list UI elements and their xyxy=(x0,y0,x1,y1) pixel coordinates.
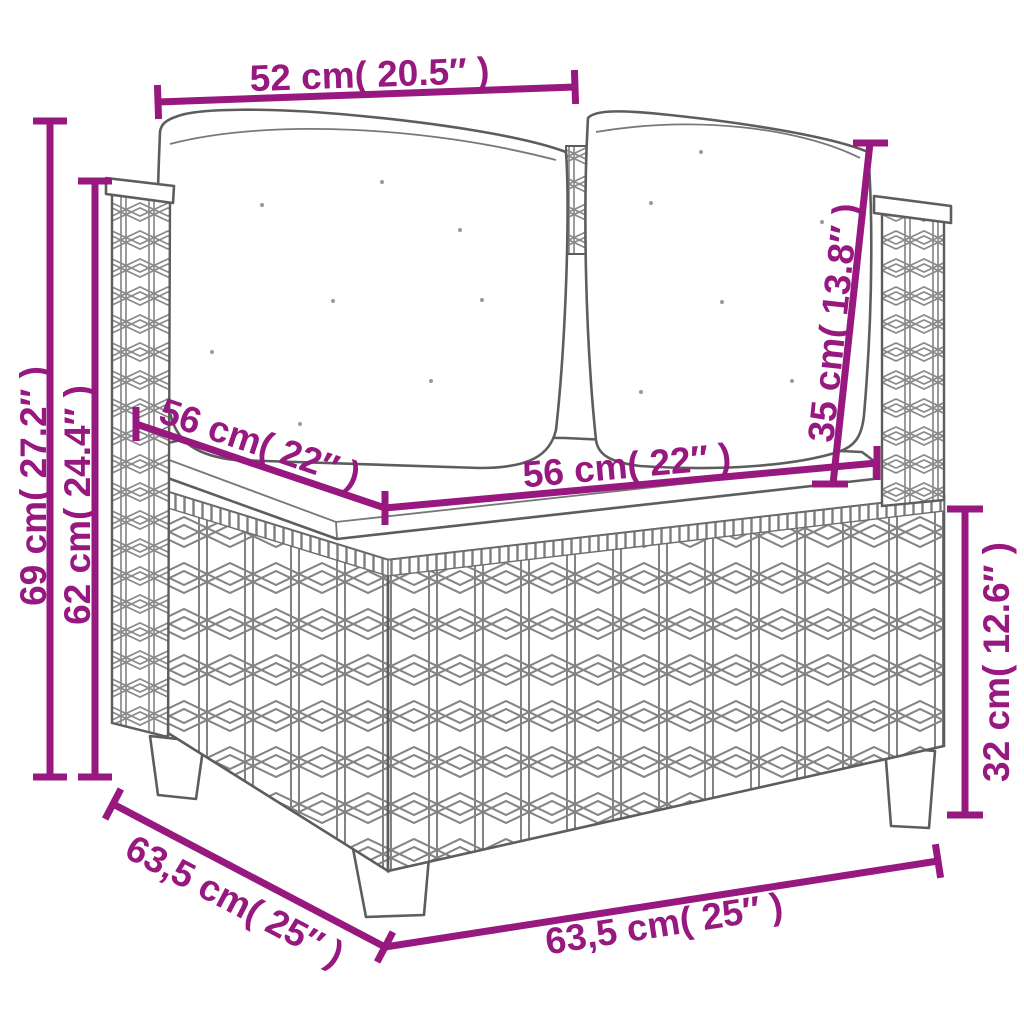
dim-label-base-height: 32 cm( 12.6″ ) xyxy=(976,542,1017,782)
leg-right xyxy=(885,747,935,828)
seat-cushion-corner-edge xyxy=(336,522,337,538)
dim-label-top-width: 52 cm( 20.5″ ) xyxy=(249,50,490,99)
armrest-left xyxy=(106,178,174,737)
dim-label-base-width: 63,5 cm( 25″ ) xyxy=(542,885,785,962)
dim-base-height: 32 cm( 12.6″ ) xyxy=(947,509,1017,815)
dim-height-arm: 62 cm( 24.4″ ) xyxy=(57,181,112,777)
sofa-base xyxy=(168,492,944,871)
armrest-right-column xyxy=(882,210,944,506)
armrest-left-column xyxy=(112,194,170,737)
dimension-diagram: 52 cm( 20.5″ ) 69 cm( 27.2″ ) 62 cm( 24.… xyxy=(0,0,1024,1024)
dim-base-width: 63,5 cm( 25″ ) xyxy=(385,844,941,962)
dim-top-width: 52 cm( 20.5″ ) xyxy=(157,50,575,119)
armrest-right xyxy=(874,196,951,506)
dim-label-height-arm: 62 cm( 24.4″ ) xyxy=(57,385,98,625)
dim-label-base-depth: 63,5 cm( 25″ ) xyxy=(119,827,350,975)
dim-label-height-total: 69 cm( 27.2″ ) xyxy=(13,366,54,606)
diagram-canvas: 52 cm( 20.5″ ) 69 cm( 27.2″ ) 62 cm( 24.… xyxy=(0,0,1024,1024)
base-left-face xyxy=(168,492,388,871)
